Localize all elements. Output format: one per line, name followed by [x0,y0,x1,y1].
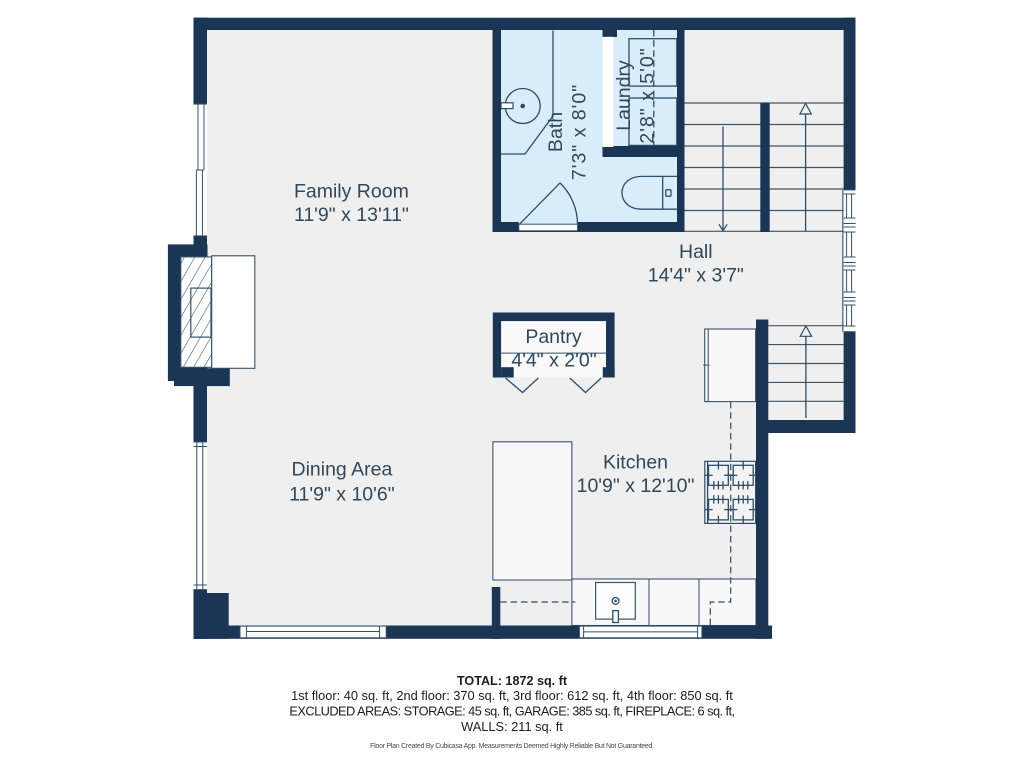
svg-text:EXCLUDED AREAS: STORAGE: 45 sq: EXCLUDED AREAS: STORAGE: 45 sq. ft, GARA… [289,704,734,719]
svg-text:Dining Area: Dining Area [291,459,392,481]
svg-text:1st floor: 40 sq. ft, 2nd floo: 1st floor: 40 sq. ft, 2nd floor: 370 sq.… [291,688,733,703]
svg-text:Hall: Hall [679,241,713,263]
svg-text:Laundry: Laundry [613,60,635,131]
svg-text:Floor Plan Created By Cubicasa: Floor Plan Created By Cubicasa App. Meas… [370,743,654,750]
svg-text:2'8" x 5'0": 2'8" x 5'0" [637,47,659,143]
svg-text:WALLS: 211 sq. ft: WALLS: 211 sq. ft [461,719,563,734]
svg-text:7'3" x 8'0": 7'3" x 8'0" [569,84,591,180]
svg-text:10'9" x 12'10": 10'9" x 12'10" [577,475,695,497]
svg-text:4'4" x 2'0": 4'4" x 2'0" [511,350,596,372]
svg-text:Pantry: Pantry [525,326,582,348]
svg-text:Family Room: Family Room [294,181,409,203]
svg-text:14'4" x 3'7": 14'4" x 3'7" [648,265,744,287]
svg-text:11'9" x 10'6": 11'9" x 10'6" [289,484,395,506]
svg-text:Bath: Bath [545,112,567,152]
svg-text:TOTAL: 1872 sq. ft: TOTAL: 1872 sq. ft [457,674,568,688]
svg-text:11'9" x 13'11": 11'9" x 13'11" [294,204,409,226]
svg-text:Kitchen: Kitchen [603,452,668,474]
